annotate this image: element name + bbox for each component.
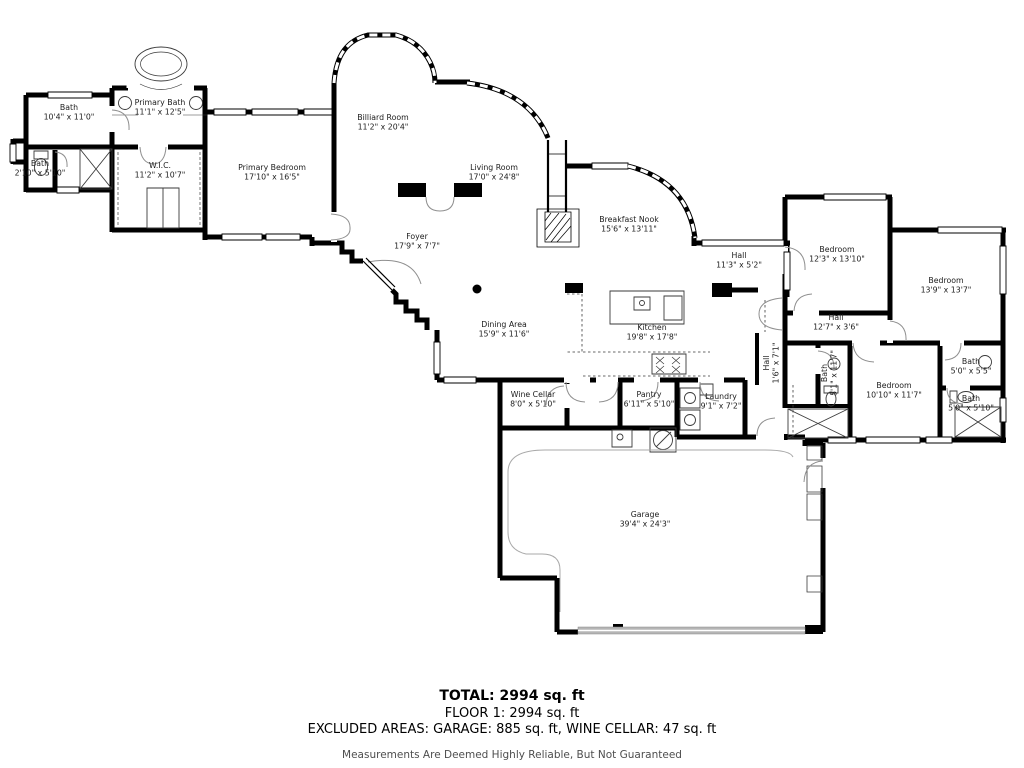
floor-plan: Bath10'4" x 11'0"Primary Bath11'1" x 12'… [0,0,1024,680]
room-label-bath-22: Bath5'0" x 5'10" [948,394,994,413]
room-label-breakfast-nook-8: Breakfast Nook15'6" x 13'11" [599,215,659,234]
floor-plan-page: Bath10'4" x 11'0"Primary Bath11'1" x 12'… [0,0,1024,768]
room-label-bedroom-20: Bedroom10'10" x 11'7" [866,381,922,400]
room-label-primary-bedroom-4: Primary Bedroom17'10" x 16'5" [238,163,306,182]
room-label-wine-cellar-15: Wine Cellar8'0" x 5'10" [510,390,556,409]
room-label-living-room-6: Living Room17'0" x 24'8" [469,163,520,182]
room-label-kitchen-14: Kitchen19'8" x 17'8" [627,323,678,342]
room-label-hall-18: Hall1'6" x 7'1" [762,343,781,384]
fireplace [537,140,579,247]
front-door-leaf [363,258,395,290]
room-label-hall-9: Hall11'3" x 5'2" [716,251,762,270]
total-area-text: TOTAL: 2994 sq. ft [0,688,1024,704]
room-label-hall-12: Hall12'7" x 3'6" [813,313,859,332]
room-label-primary-bath-1: Primary Bath11'1" x 12'5" [135,98,186,117]
room-label-billiard-room-5: Billiard Room11'2" x 20'4" [357,113,409,132]
column-dot [473,285,482,294]
excluded-areas-text: EXCLUDED AREAS: GARAGE: 885 sq. ft, WINE… [0,722,1024,737]
bay-window-glazing [128,35,695,238]
garage-slab-outline [508,450,793,612]
room-label-bedroom-11: Bedroom13'9" x 13'7" [921,276,972,295]
room-label-laundry-17: Laundry9'1" x 7'2" [701,392,742,411]
room-label-bath-0: Bath10'4" x 11'0" [44,103,95,122]
room-label-w-i-c--3: W.I.C.11'2" x 10'7" [135,161,186,180]
summary: TOTAL: 2994 sq. ft FLOOR 1: 2994 sq. ft … [0,688,1024,761]
room-label-foyer-7: Foyer17'9" x 7'7" [394,232,440,251]
room-label-pantry-16: Pantry6'11" x 5'10" [624,390,675,409]
floor-area-text: FLOOR 1: 2994 sq. ft [0,706,1024,721]
room-label-bath-21: Bath5'0" x 5'5" [951,357,992,376]
room-label-garage-23: Garage39'4" x 24'3" [620,510,671,529]
wall-blocks [398,183,823,634]
garage-door [578,627,805,634]
room-label-bath-19: Bath5'1" x 11'7" [820,350,839,396]
room-label-dining-area-13: Dining Area15'9" x 11'6" [479,320,530,339]
room-label-bedroom-10: Bedroom12'3" x 13'10" [809,245,865,264]
disclaimer-text: Measurements Are Deemed Highly Reliable,… [0,749,1024,761]
